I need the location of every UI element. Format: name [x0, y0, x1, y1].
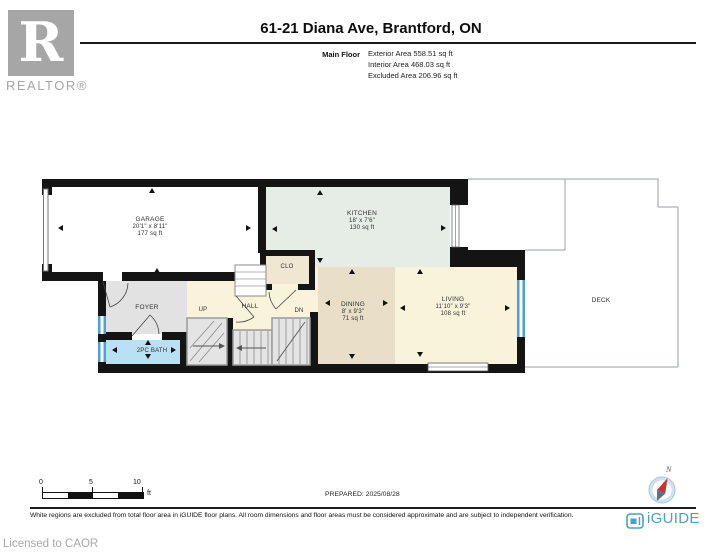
garage-dims: 20'1" x 8'11"	[90, 224, 210, 232]
room-label-foyer: FOYER	[107, 304, 187, 312]
dining-dims: 8' x 9'3"	[313, 309, 393, 317]
room-label-dining: DINING 8' x 9'3" 71 sq ft	[313, 301, 393, 324]
dining-area: 71 sq ft	[313, 316, 393, 324]
iguide-brand-label: iGUIDE	[647, 510, 700, 527]
bath-name: 2PC BATH	[137, 348, 168, 354]
dining-name: DINING	[313, 301, 393, 309]
stairs-up-run	[187, 318, 227, 365]
room-label-deck: DECK	[561, 297, 641, 305]
foyer-name: FOYER	[135, 304, 158, 311]
room-label-kitchen: KITCHEN 18' x 7'6" 130 sq ft	[302, 210, 422, 233]
compass-icon	[649, 476, 675, 503]
scale-tick-0: 0	[39, 479, 43, 486]
stairs-down-label: DN	[284, 308, 314, 314]
footer-divider	[30, 507, 696, 509]
living-area: 108 sq ft	[393, 311, 513, 319]
garage-area: 177 sq ft	[90, 231, 210, 239]
room-label-bath: 2PC BATH	[110, 348, 194, 354]
room-label-closet: CLO	[267, 264, 307, 270]
up-text: UP	[199, 307, 208, 313]
room-label-garage: GARAGE 20'1" x 8'11" 177 sq ft	[90, 216, 210, 239]
dn-text: DN	[294, 308, 303, 314]
scale-tick-5: 5	[89, 479, 93, 486]
kitchen-area: 130 sq ft	[302, 225, 422, 233]
prepared-date: PREPARED: 2025/08/28	[325, 491, 400, 498]
floor-plan-graphic	[0, 0, 720, 555]
disclaimer-text: White regions are excluded from total fl…	[30, 512, 680, 519]
kitchen-name: KITCHEN	[302, 210, 422, 218]
closet-name: CLO	[281, 264, 294, 270]
floor-plan-page: R REALTOR® 61-21 Diana Ave, Brantford, O…	[0, 0, 720, 555]
entry-steps	[235, 265, 266, 296]
scale-bar-segment	[68, 493, 93, 498]
stairs-up-label: UP	[188, 307, 218, 313]
garage-name: GARAGE	[90, 216, 210, 224]
kitchen-dims: 18' x 7'6"	[302, 218, 422, 226]
room-label-living: LIVING 11'10" x 9'3" 108 sq ft	[393, 296, 513, 319]
scale-bar-segment	[118, 493, 143, 498]
hall-name: HALL	[241, 303, 258, 310]
scale-bar	[42, 492, 144, 499]
licensed-to-text: Licensed to CAOR	[3, 538, 98, 550]
stairs-down-run	[272, 318, 310, 365]
stairs-landing	[233, 330, 272, 365]
compass-north-label: N	[666, 465, 671, 474]
scale-unit: ft	[147, 490, 151, 497]
room-label-hall: HALL	[220, 303, 280, 311]
scale-tick-10: 10	[133, 479, 141, 486]
garage-door	[44, 189, 49, 271]
deck-name: DECK	[592, 297, 611, 304]
living-dims: 11'10" x 9'3"	[393, 304, 513, 312]
living-name: LIVING	[393, 296, 513, 304]
